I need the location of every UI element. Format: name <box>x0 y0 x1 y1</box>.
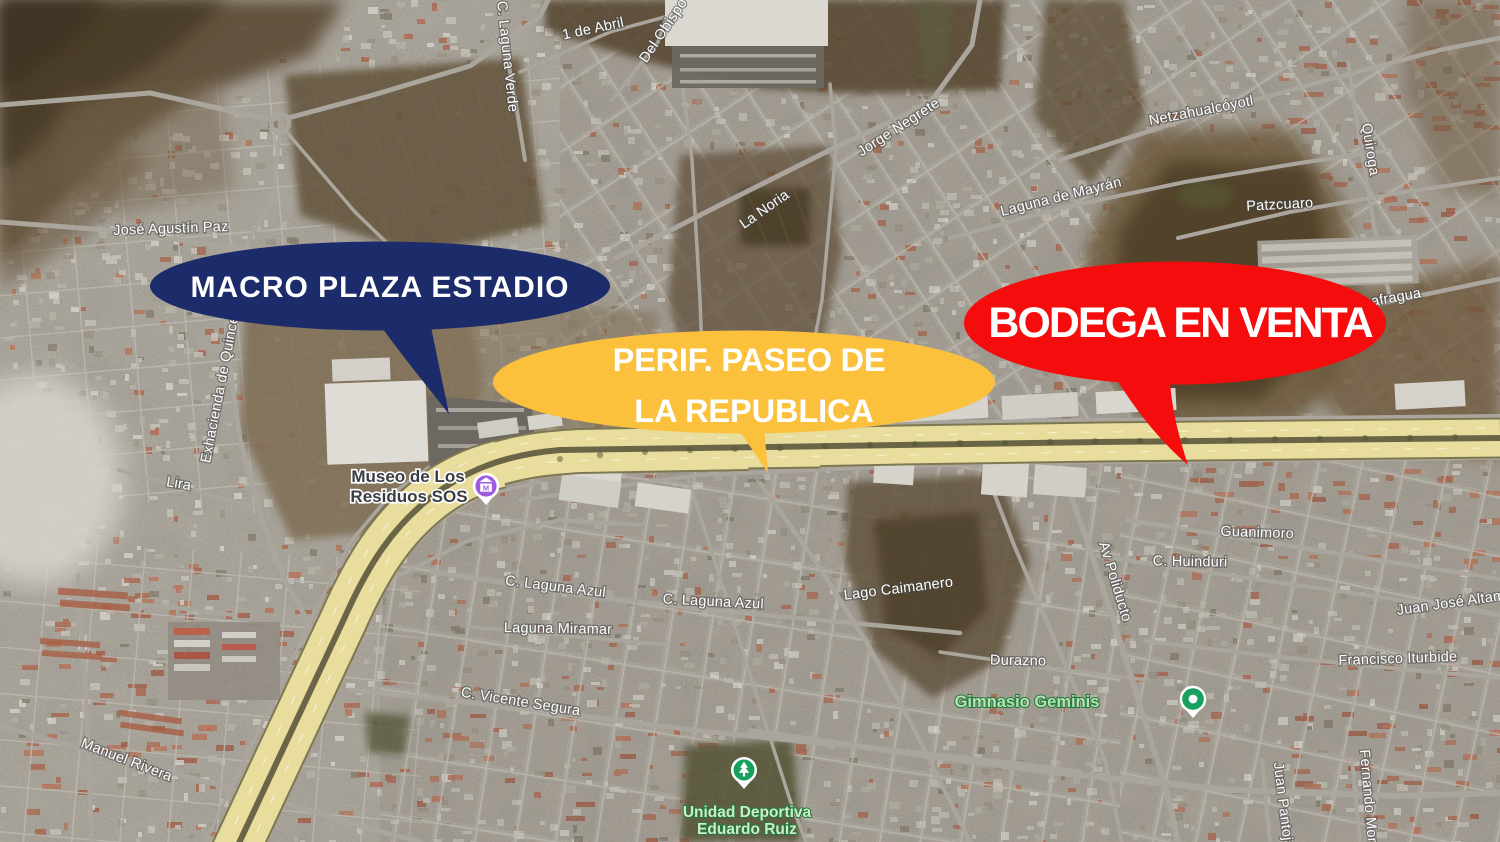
svg-text:Museo de Los: Museo de Los <box>351 467 464 486</box>
svg-text:PERIF. PASEO DE: PERIF. PASEO DE <box>613 342 886 378</box>
svg-text:MACRO PLAZA ESTADIO: MACRO PLAZA ESTADIO <box>191 271 570 304</box>
svg-text:Durazno: Durazno <box>990 653 1046 670</box>
svg-text:Laguna Miramar: Laguna Miramar <box>504 620 613 638</box>
svg-text:LA REPUBLICA: LA REPUBLICA <box>634 393 874 429</box>
svg-text:BODEGA EN VENTA: BODEGA EN VENTA <box>988 299 1372 347</box>
svg-text:Gimnasio Geminis: Gimnasio Geminis <box>955 693 1100 711</box>
svg-text:Residuos SOS: Residuos SOS <box>350 487 467 506</box>
svg-text:Unidad Deportiva: Unidad Deportiva <box>683 804 812 821</box>
svg-text:C. Huinduri: C. Huinduri <box>1153 553 1228 570</box>
svg-text:M: M <box>483 484 489 493</box>
svg-text:Eduardo Ruiz: Eduardo Ruiz <box>697 821 797 838</box>
svg-text:Guanimoro: Guanimoro <box>1220 524 1294 543</box>
